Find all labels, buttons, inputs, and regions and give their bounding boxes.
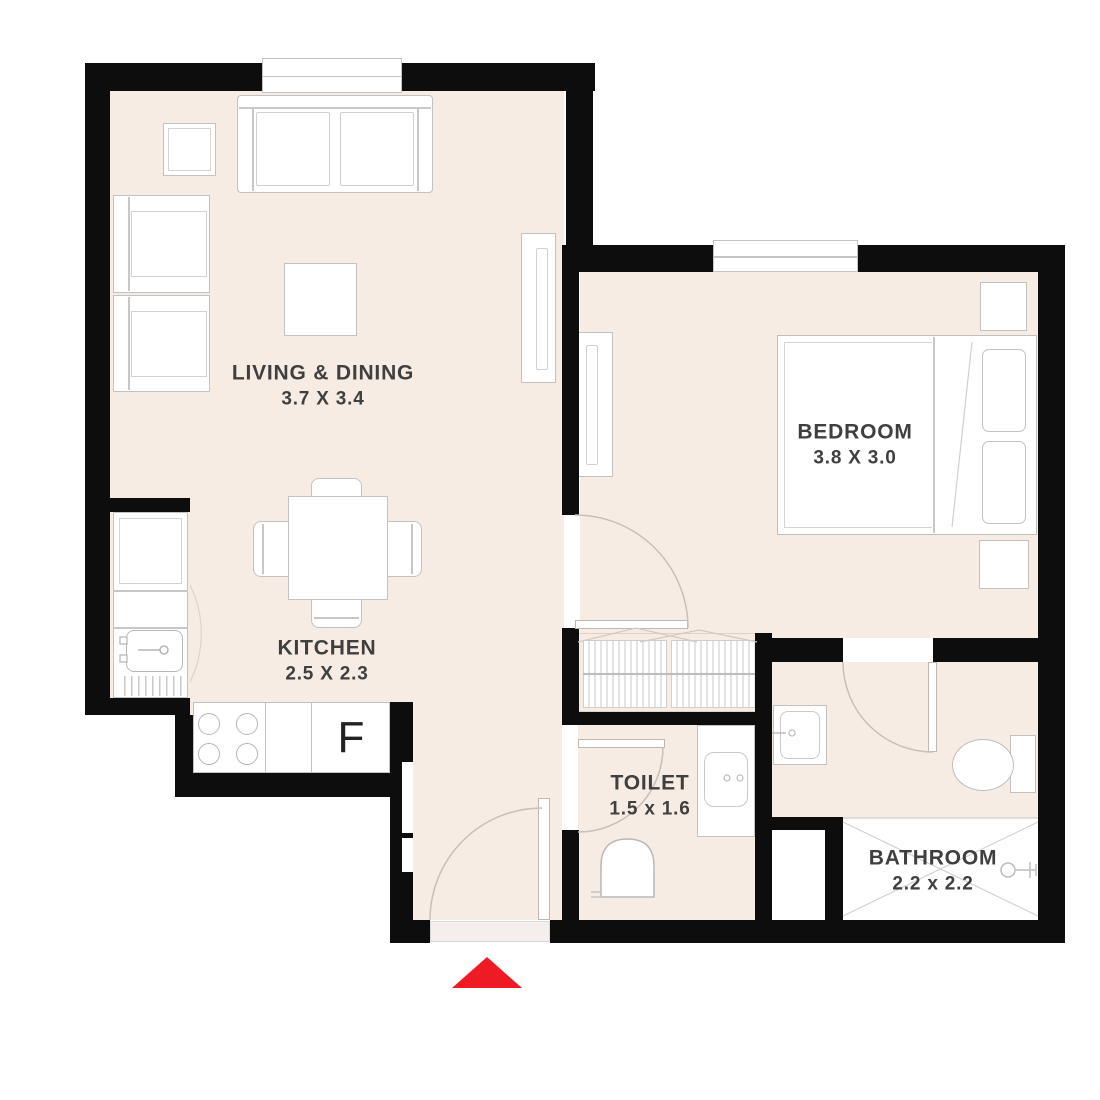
dining-chair-back bbox=[411, 524, 413, 574]
sofa-seat-cushion bbox=[256, 112, 330, 186]
kitchen-cabinet bbox=[119, 518, 182, 584]
dining-chair bbox=[385, 521, 422, 577]
room-label-toilet: TOILET 1.5 x 1.6 bbox=[609, 771, 690, 822]
room-label-bedroom: BEDROOM 3.8 X 3.0 bbox=[797, 420, 912, 471]
room-dims: 3.7 X 3.4 bbox=[232, 387, 414, 412]
wall bbox=[85, 698, 190, 715]
bathroom-toilet-bowl bbox=[952, 739, 1014, 791]
sofa-arm-right bbox=[417, 108, 419, 191]
window bbox=[713, 240, 858, 272]
room-name: BATHROOM bbox=[869, 846, 998, 872]
wall bbox=[566, 63, 593, 245]
dining-table bbox=[288, 496, 388, 600]
stove-burner bbox=[236, 743, 258, 765]
pillow bbox=[982, 349, 1026, 432]
kitchen-counter-mid bbox=[265, 702, 313, 773]
window bbox=[262, 58, 402, 93]
wall bbox=[562, 628, 579, 712]
fridge-label: F bbox=[338, 713, 365, 763]
wall bbox=[390, 920, 430, 943]
nightstand bbox=[980, 282, 1027, 331]
wall bbox=[755, 633, 772, 920]
stove-burner bbox=[236, 713, 258, 735]
entrance-arrow-icon bbox=[452, 957, 522, 988]
bedroom-door-leaf bbox=[575, 620, 688, 629]
bathroom-door-leaf bbox=[928, 662, 937, 752]
room-name: BEDROOM bbox=[797, 420, 912, 446]
wall bbox=[85, 63, 262, 91]
wardrobe-rail bbox=[583, 673, 757, 675]
room-dims: 2.5 X 2.3 bbox=[278, 662, 377, 687]
room-name: TOILET bbox=[609, 771, 690, 797]
dining-chair bbox=[311, 597, 362, 628]
dining-chair-back bbox=[262, 524, 264, 574]
room-label-kitchen: KITCHEN 2.5 X 2.3 bbox=[278, 636, 377, 687]
counter-line bbox=[113, 590, 188, 592]
wall bbox=[175, 773, 413, 797]
door-frame-notch bbox=[402, 838, 413, 872]
room-dims: 2.2 x 2.2 bbox=[869, 872, 998, 897]
wall bbox=[755, 817, 843, 830]
room-name: KITCHEN bbox=[278, 636, 377, 662]
wall bbox=[85, 63, 110, 715]
service-niche bbox=[772, 830, 825, 920]
side-table-top bbox=[168, 128, 211, 171]
room-label-living: LIVING & DINING 3.7 X 3.4 bbox=[232, 361, 414, 412]
room-name: LIVING & DINING bbox=[232, 361, 414, 387]
dining-chair-back bbox=[314, 617, 359, 619]
wall bbox=[825, 830, 843, 920]
door-frame-notch bbox=[402, 762, 413, 833]
wall bbox=[562, 830, 579, 920]
dining-chair bbox=[253, 521, 290, 577]
wall bbox=[579, 245, 713, 272]
wall bbox=[858, 245, 1038, 272]
pillow bbox=[982, 441, 1026, 524]
room-dims: 3.8 X 3.0 bbox=[797, 446, 912, 471]
sofa-arm-left bbox=[252, 108, 254, 191]
toilet-washbasin bbox=[704, 752, 748, 807]
stove-burner bbox=[198, 743, 220, 765]
coffee-table bbox=[284, 263, 357, 336]
armchair-seat bbox=[131, 211, 207, 277]
room-dims: 1.5 x 1.6 bbox=[609, 797, 690, 822]
wall bbox=[562, 712, 758, 725]
entrance-threshold bbox=[430, 921, 550, 942]
wall bbox=[755, 638, 843, 662]
entrance-door-leaf bbox=[538, 798, 550, 920]
stove-burner bbox=[198, 713, 220, 735]
nightstand bbox=[979, 540, 1029, 589]
kitchen-sink bbox=[126, 630, 183, 672]
wall bbox=[562, 245, 579, 515]
wall bbox=[933, 638, 1038, 662]
tv-bedroom bbox=[586, 345, 598, 465]
wall bbox=[562, 920, 1065, 943]
tv-living bbox=[536, 248, 548, 370]
sofa-seat-cushion bbox=[340, 112, 414, 186]
counter-line bbox=[113, 627, 188, 629]
sink-drainboard bbox=[124, 676, 184, 696]
bathroom-washbasin bbox=[780, 711, 820, 759]
armchair-back-line bbox=[128, 297, 130, 390]
floor-plan: F bbox=[0, 0, 1100, 1100]
armchair-back-line bbox=[128, 197, 130, 291]
sofa-back-line bbox=[239, 107, 431, 109]
bed-head-line bbox=[933, 337, 935, 533]
toilet-door-leaf bbox=[578, 739, 665, 748]
wall bbox=[110, 498, 190, 512]
room-label-bathroom: BATHROOM 2.2 x 2.2 bbox=[869, 846, 998, 897]
wall bbox=[1038, 245, 1065, 943]
armchair-seat bbox=[131, 311, 207, 377]
